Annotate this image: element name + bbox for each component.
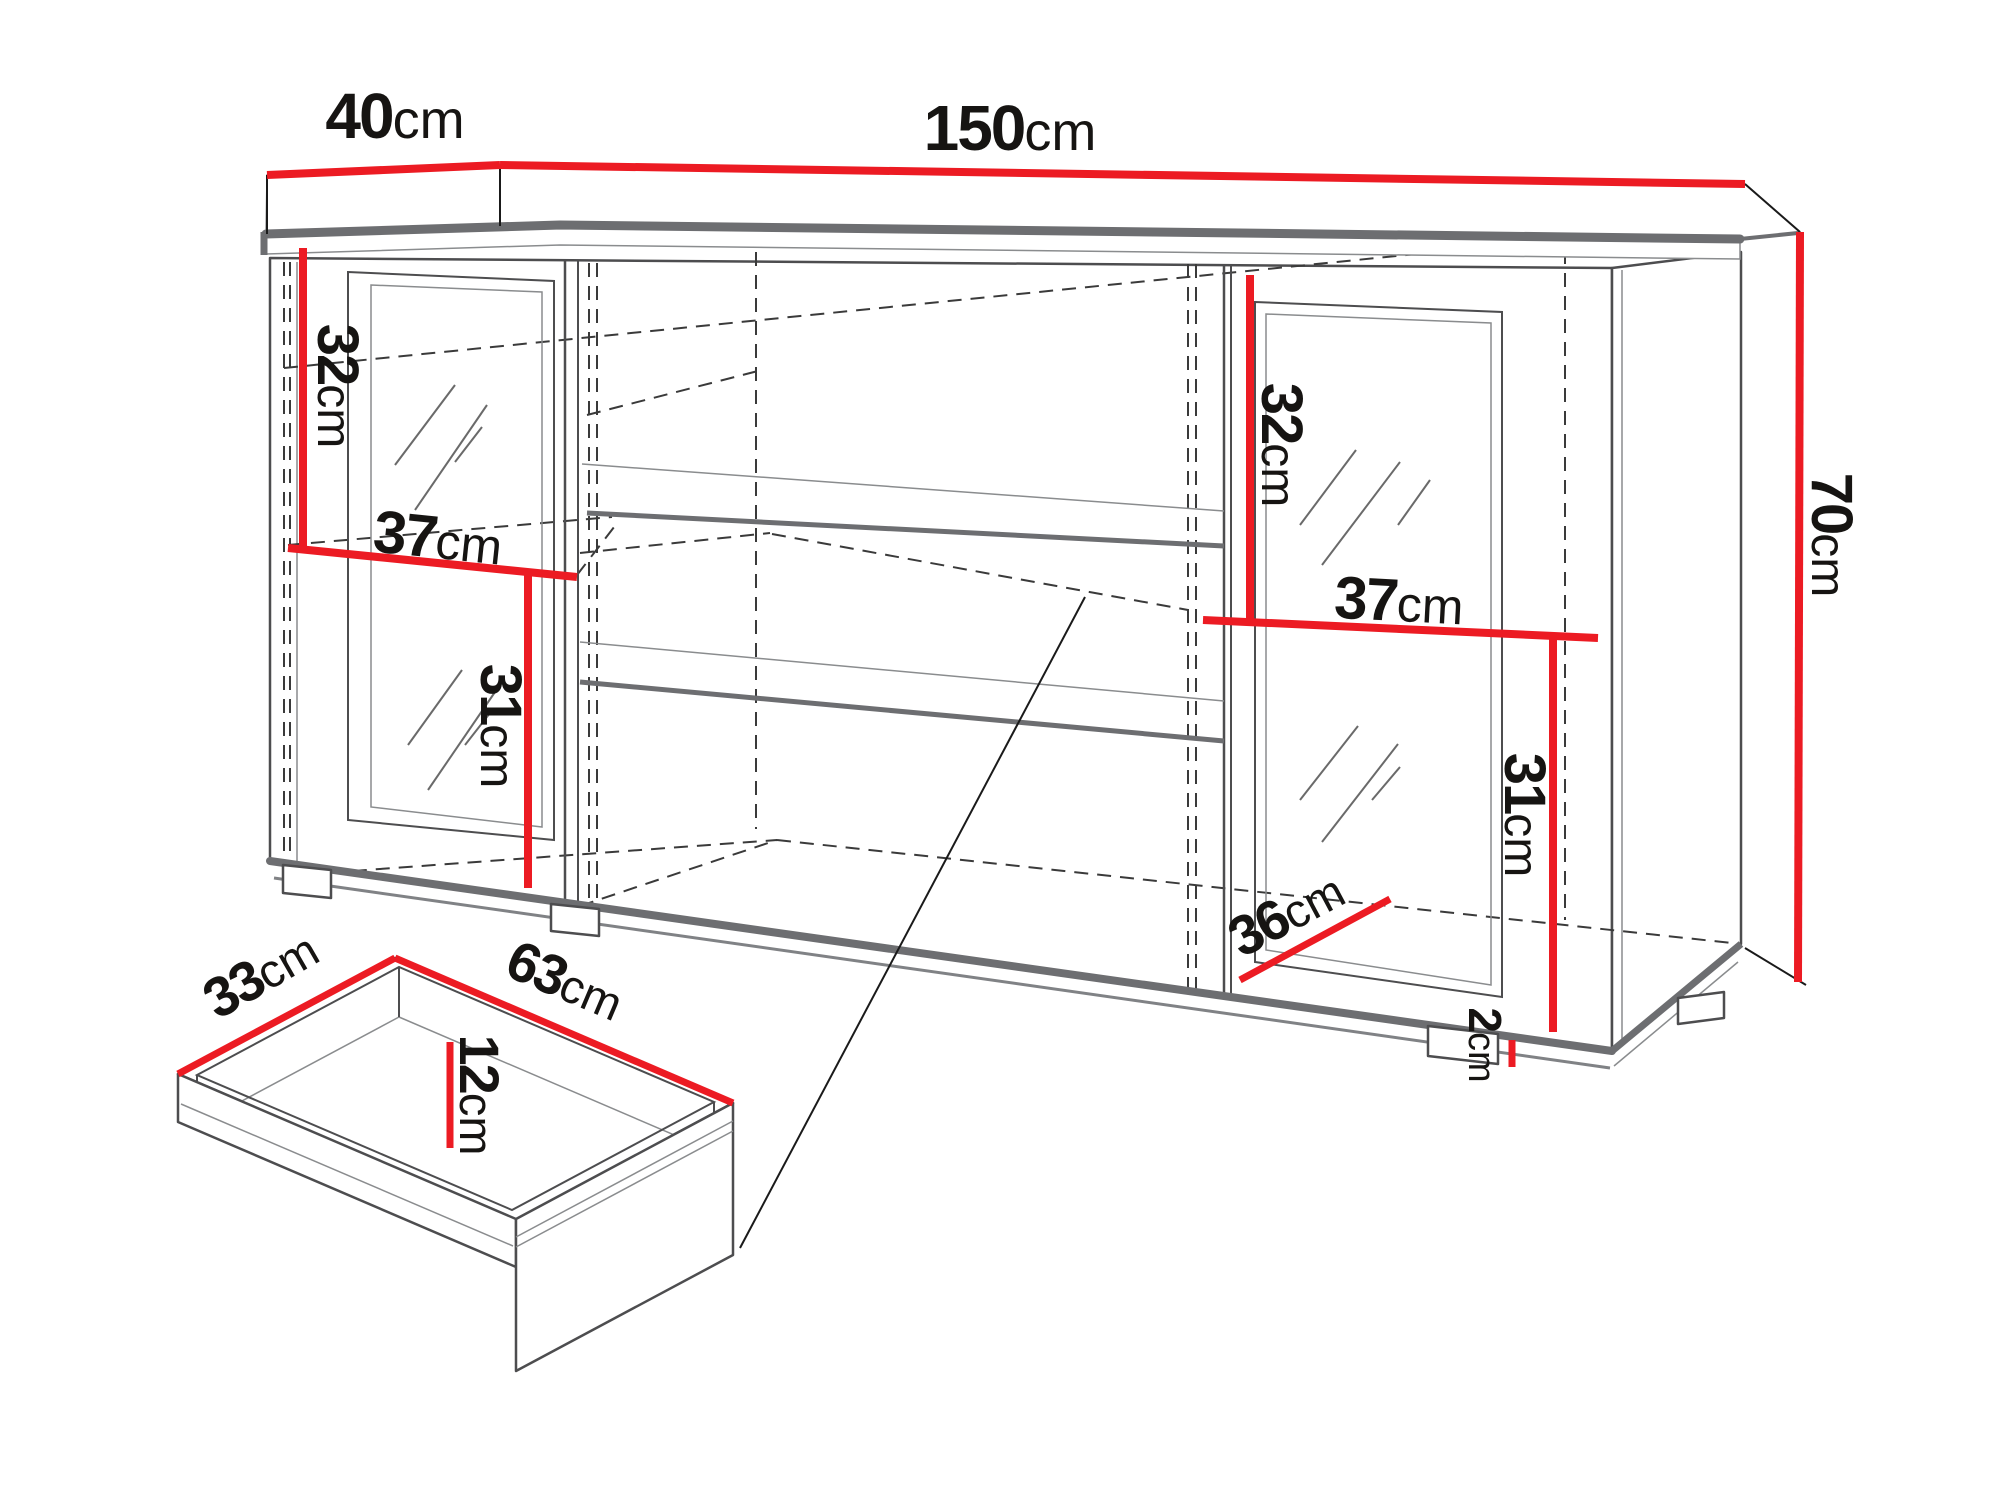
technical-drawing-canvas: 40cm 150cm 70cm 32cm 37cm 31cm 32cm 37cm…	[0, 0, 2000, 1499]
foot-middle-left	[551, 904, 599, 936]
dim-drawer-height-label: 12cm	[448, 1035, 511, 1156]
dim-right-upper-height-label: 32cm	[1249, 383, 1314, 508]
cabinet-right-side-face	[1612, 252, 1741, 1051]
drawer-detail	[178, 958, 733, 1371]
dim-height-line	[1798, 232, 1800, 982]
foot-back-right	[1678, 992, 1724, 1024]
dim-width-label: 150cm	[924, 92, 1097, 164]
cabinet-carcass	[270, 252, 1741, 1051]
cabinet-front-face	[270, 258, 1612, 1051]
dim-height-label: 70cm	[1799, 473, 1864, 598]
dim-left-upper-height-label: 32cm	[305, 324, 370, 449]
foot-front-left	[283, 865, 331, 898]
dim-depth-label: 40cm	[325, 80, 464, 152]
dim-foot-height-label: 2cm	[1459, 1007, 1511, 1082]
cabinet-dimension-drawing: 40cm 150cm 70cm 32cm 37cm 31cm 32cm 37cm…	[0, 0, 2000, 1499]
dim-left-lower-height-label: 31cm	[468, 664, 533, 789]
dim-right-lower-height-label: 31cm	[1492, 753, 1557, 878]
